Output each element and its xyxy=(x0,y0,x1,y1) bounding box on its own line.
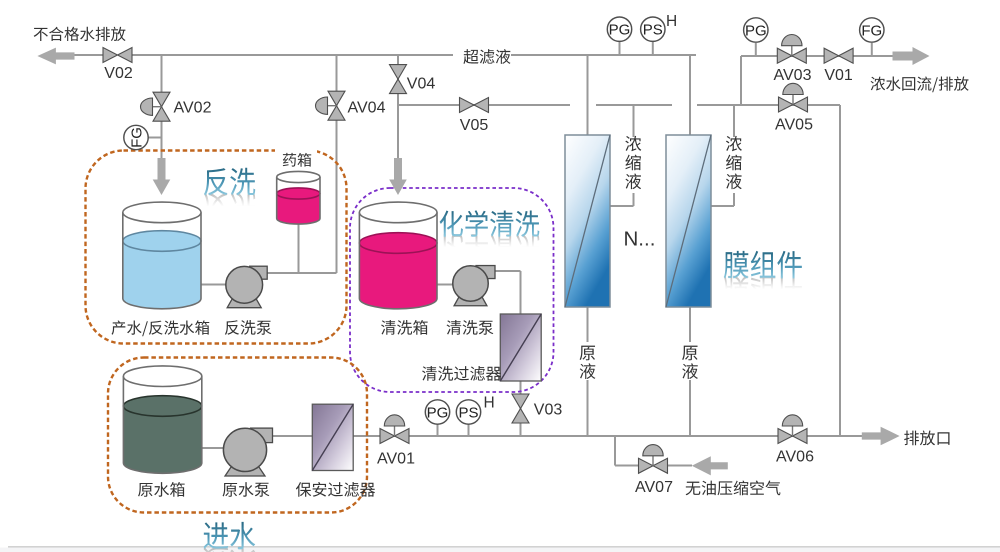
svg-text:PS: PS xyxy=(458,404,478,421)
svg-text:V05: V05 xyxy=(460,117,489,134)
svg-text:PG: PG xyxy=(745,22,767,39)
svg-text:PG: PG xyxy=(427,404,449,421)
svg-text:V03: V03 xyxy=(534,402,563,419)
svg-text:FG: FG xyxy=(861,22,882,39)
svg-text:AV04: AV04 xyxy=(348,100,386,117)
svg-text:AV05: AV05 xyxy=(775,117,813,134)
svg-text:AV07: AV07 xyxy=(635,479,673,496)
svg-text:AV02: AV02 xyxy=(174,100,212,117)
svg-text:AV06: AV06 xyxy=(776,449,814,466)
svg-text:V01: V01 xyxy=(824,67,853,84)
svg-text:PG: PG xyxy=(609,21,631,38)
svg-text:H: H xyxy=(666,13,677,30)
svg-text:V04: V04 xyxy=(407,76,436,93)
svg-text:AV03: AV03 xyxy=(774,67,812,84)
svg-text:PS: PS xyxy=(643,21,663,38)
svg-text:H: H xyxy=(484,395,495,412)
svg-text:FG: FG xyxy=(128,127,145,148)
svg-text:AV01: AV01 xyxy=(377,451,415,468)
svg-text:N...: N... xyxy=(624,228,656,251)
svg-text:V02: V02 xyxy=(104,65,133,82)
